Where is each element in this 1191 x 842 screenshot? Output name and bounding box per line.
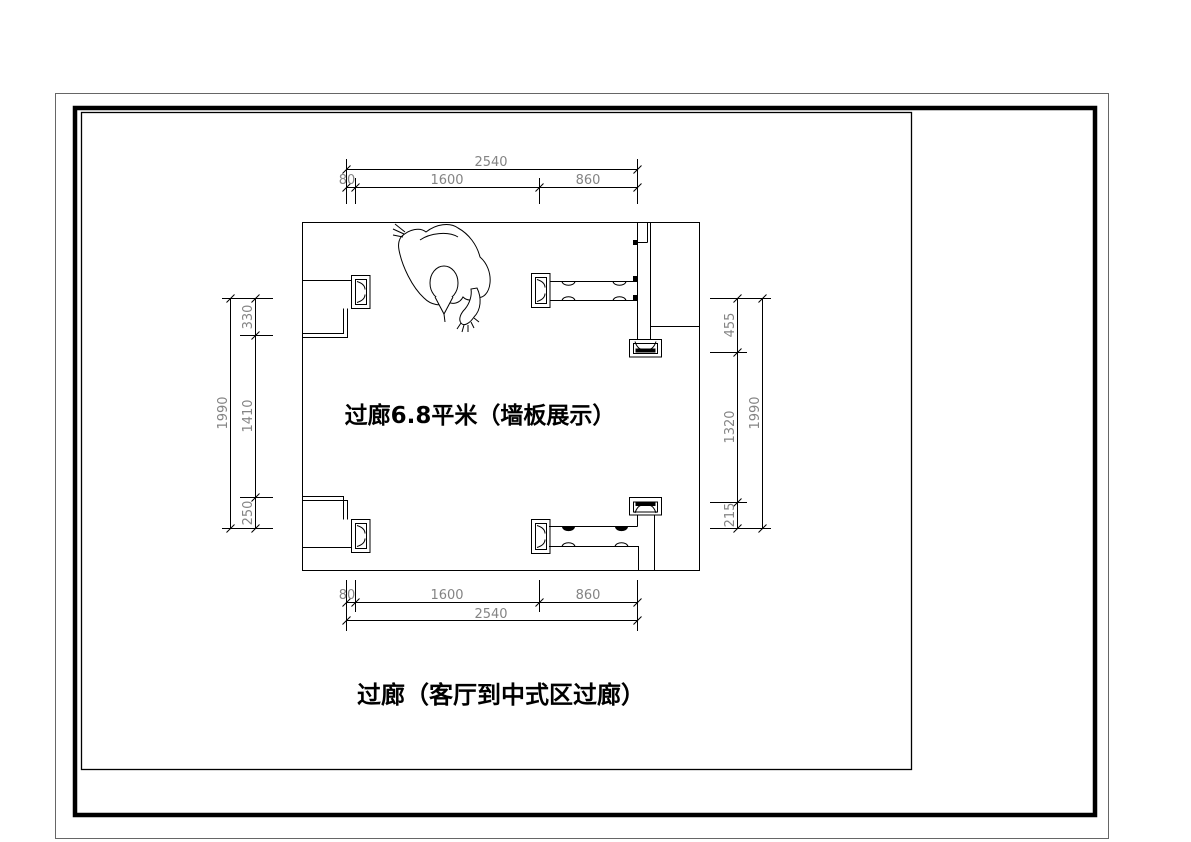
wall-stub-top-left bbox=[303, 276, 371, 338]
panel-clip-icon bbox=[562, 543, 575, 547]
dimension-top: 2540 80 1600 860 bbox=[339, 155, 642, 204]
plan-area-label: 过廊6.8平米（墙板展示） bbox=[345, 402, 616, 429]
dim-top-seg-1600: 1600 bbox=[430, 173, 463, 188]
dim-right-seg-1320: 1320 bbox=[723, 410, 738, 443]
drawing-frame bbox=[82, 113, 912, 770]
human-figure-icon bbox=[393, 224, 490, 332]
outer-border bbox=[56, 94, 1109, 839]
dim-right-overall: 1990 bbox=[748, 396, 763, 429]
sheet-borders bbox=[56, 94, 1109, 839]
dim-right-seg-215: 215 bbox=[723, 503, 738, 528]
dim-bottom-seg-80: 80 bbox=[339, 588, 356, 603]
dim-top-seg-860: 860 bbox=[576, 173, 601, 188]
dim-bottom-seg-1600: 1600 bbox=[430, 588, 463, 603]
dim-top-seg-80: 80 bbox=[339, 173, 356, 188]
panel-clip-icon bbox=[615, 543, 628, 547]
dimension-left: 330 1410 250 1990 bbox=[216, 295, 273, 533]
dim-left-overall: 1990 bbox=[216, 396, 231, 429]
panel-clip-icon bbox=[562, 282, 575, 286]
dim-left-seg-1410: 1410 bbox=[241, 399, 256, 432]
panel-wall-top-right bbox=[532, 240, 639, 308]
panel-clip-icon bbox=[562, 297, 575, 301]
floor-plan bbox=[303, 223, 700, 571]
wall-top-right-vertical bbox=[630, 223, 700, 358]
panel-clip-icon bbox=[615, 527, 628, 531]
dim-bottom-overall: 2540 bbox=[474, 607, 507, 622]
dim-bottom-seg-860: 860 bbox=[576, 588, 601, 603]
panel-clip-icon bbox=[613, 297, 626, 301]
panel-clip-icon bbox=[613, 282, 626, 286]
dim-right-seg-455: 455 bbox=[723, 313, 738, 338]
panel-wall-bottom-right bbox=[532, 498, 662, 571]
dim-left-seg-250: 250 bbox=[241, 501, 256, 526]
dimension-bottom: 80 1600 860 2540 bbox=[339, 580, 642, 631]
plan-outline bbox=[303, 223, 700, 571]
dim-left-seg-330: 330 bbox=[241, 305, 256, 330]
dimension-right: 455 1320 215 1990 bbox=[710, 295, 771, 533]
cad-drawing-canvas: 2540 80 1600 860 80 1600 860 2540 330 14… bbox=[0, 0, 1191, 842]
wall-stub-bottom-left bbox=[303, 497, 371, 553]
dim-top-overall: 2540 bbox=[474, 155, 507, 170]
drawing-caption: 过廊（客厅到中式区过廊） bbox=[357, 681, 645, 709]
panel-clip-icon bbox=[562, 527, 575, 531]
